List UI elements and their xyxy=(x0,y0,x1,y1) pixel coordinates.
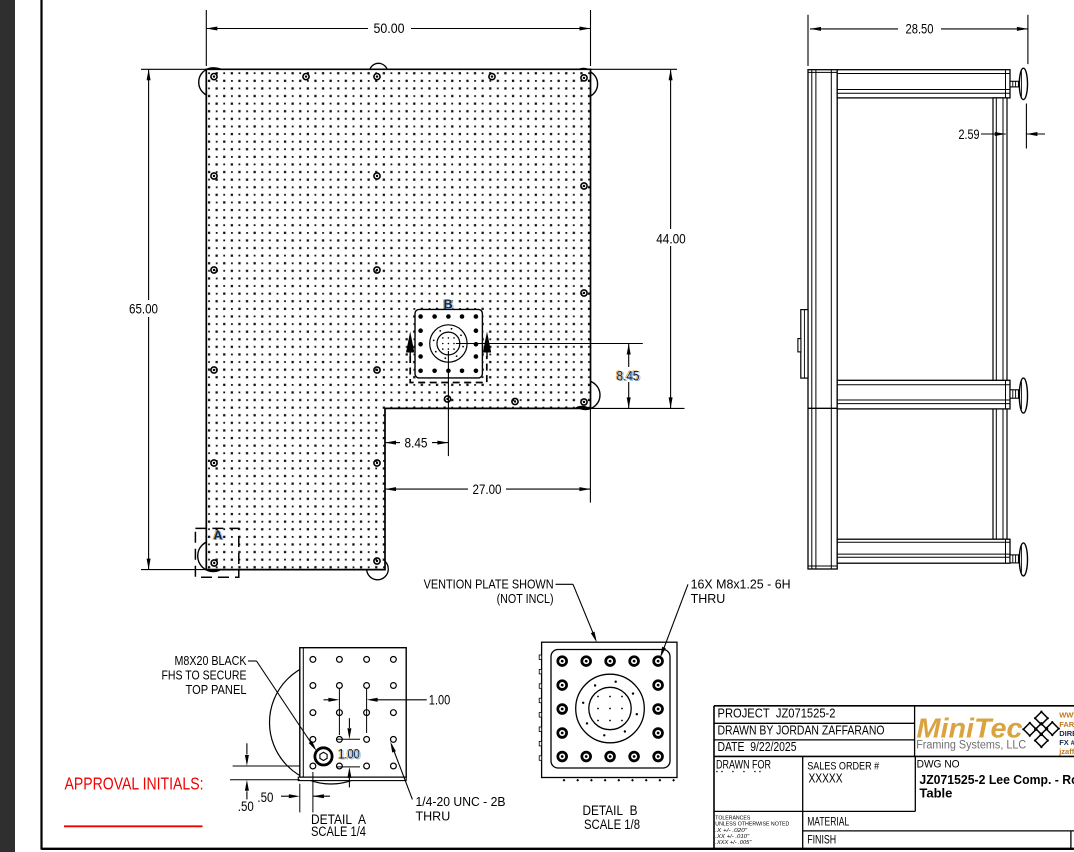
svg-text:TOP PANEL: TOP PANEL xyxy=(186,683,247,697)
svg-text:UNLESS OTHERWISE NOTED: UNLESS OTHERWISE NOTED xyxy=(715,822,789,828)
svg-text:MATERIAL: MATERIAL xyxy=(807,814,849,828)
svg-text:THRU: THRU xyxy=(691,592,726,606)
svg-text:1/4-20 UNC - 2B: 1/4-20 UNC - 2B xyxy=(416,795,506,809)
svg-text:.XXX +/- .005": .XXX +/- .005" xyxy=(715,840,752,846)
svg-text:FHS TO SECURE: FHS TO SECURE xyxy=(162,669,247,683)
svg-text:65.00: 65.00 xyxy=(129,302,158,317)
svg-text:DETAIL B: DETAIL B xyxy=(583,803,638,818)
svg-text:1.00: 1.00 xyxy=(338,747,360,762)
svg-text:PROJECT JZ071525-2: PROJECT JZ071525-2 xyxy=(718,707,836,721)
svg-text:44.00: 44.00 xyxy=(656,232,686,247)
svg-text:.50: .50 xyxy=(257,790,273,805)
svg-text:A: A xyxy=(213,529,222,543)
svg-text:DIRECT #: DIRECT # xyxy=(1059,729,1074,738)
svg-text:WWW.MIN: WWW.MIN xyxy=(1059,710,1074,719)
svg-text:FX # 631-6: FX # 631-6 xyxy=(1059,738,1074,747)
svg-text:SCALE 1/8: SCALE 1/8 xyxy=(584,817,640,832)
svg-text:16X M8x1.25 - 6H: 16X M8x1.25 - 6H xyxy=(691,578,791,592)
svg-text:DRAWN BY JORDAN ZAFFARANO: DRAWN BY JORDAN ZAFFARANO xyxy=(718,723,885,737)
svg-text:.50: .50 xyxy=(238,799,254,814)
svg-text:50.00: 50.00 xyxy=(374,21,405,36)
svg-text:DWG NO: DWG NO xyxy=(917,759,960,771)
svg-text:28.50: 28.50 xyxy=(906,21,934,36)
svg-text:8.45: 8.45 xyxy=(617,368,640,383)
svg-text:Table: Table xyxy=(919,785,952,800)
svg-text:TOLERANCES: TOLERANCES xyxy=(715,815,750,821)
svg-text:THRU: THRU xyxy=(416,809,451,823)
svg-text:DATE 9/22/2025: DATE 9/22/2025 xyxy=(718,740,797,754)
svg-text:SCALE 1/4: SCALE 1/4 xyxy=(311,824,366,839)
svg-text:1.00: 1.00 xyxy=(429,693,451,708)
svg-text:FARMINGD: FARMINGD xyxy=(1059,720,1074,729)
svg-text:APPROVAL INITIALS:: APPROVAL INITIALS: xyxy=(65,774,204,794)
svg-text:jzaffarano: jzaffarano xyxy=(1058,747,1074,756)
svg-text:DRAWN FOR: DRAWN FOR xyxy=(716,759,771,772)
svg-text:2.59: 2.59 xyxy=(959,127,980,142)
svg-text:XXXXX: XXXXX xyxy=(809,772,844,786)
svg-text:27.00: 27.00 xyxy=(473,482,502,497)
svg-text:B: B xyxy=(444,298,453,312)
svg-text:Framing Systems, LLC: Framing Systems, LLC xyxy=(916,740,1026,752)
svg-text:8.45: 8.45 xyxy=(405,435,428,450)
svg-text:M8X20 BLACK: M8X20 BLACK xyxy=(175,654,248,668)
svg-text:VENTION PLATE SHOWN: VENTION PLATE SHOWN xyxy=(424,578,554,592)
svg-text:(NOT INCL): (NOT INCL) xyxy=(497,592,554,606)
svg-text:.XX +/- .010": .XX +/- .010" xyxy=(715,834,750,840)
svg-text:FINISH: FINISH xyxy=(807,832,836,846)
